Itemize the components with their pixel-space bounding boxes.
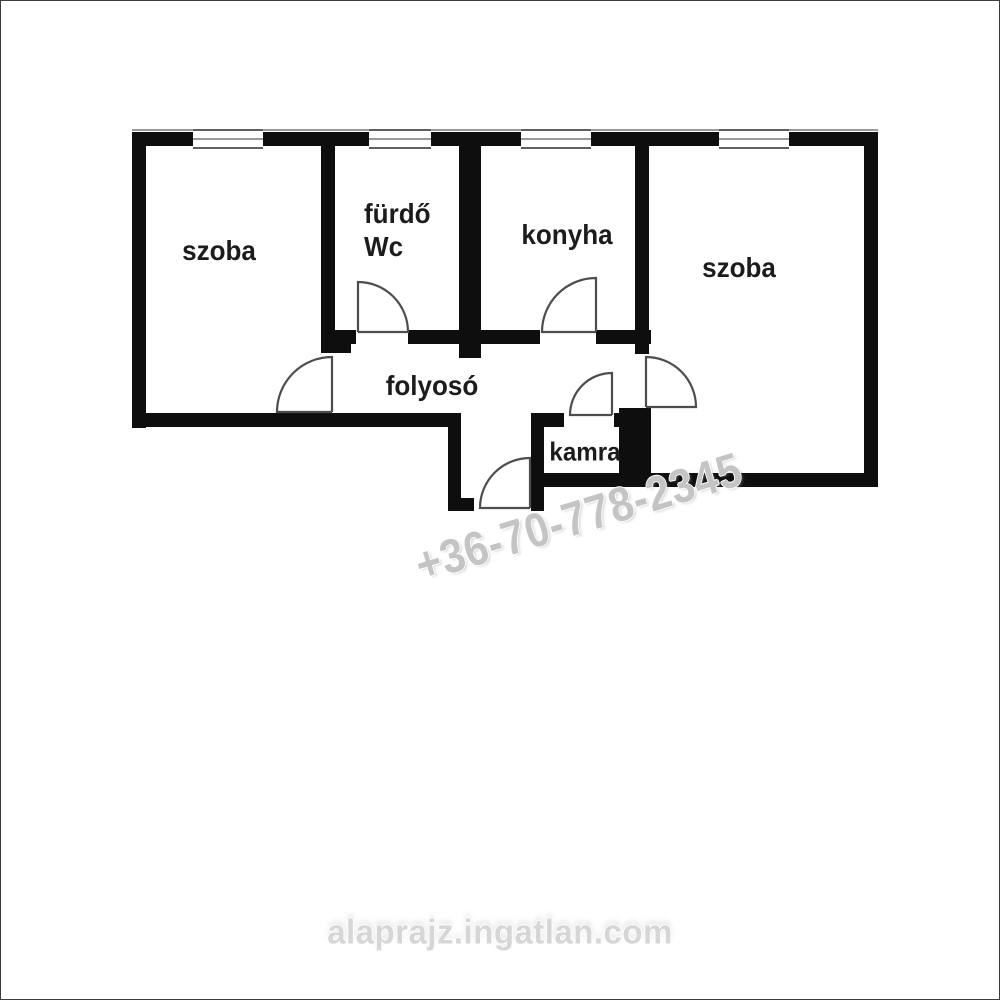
room-label-bathroom-line1: fürdő [364, 198, 431, 229]
room-label-room-right: szoba [702, 252, 776, 284]
door-arc-room-right [646, 357, 696, 407]
door-arc-bathroom [358, 282, 408, 332]
door-arc-room-left [277, 357, 332, 412]
door-symbols [1, 1, 1000, 1000]
room-label-pantry: kamra [549, 437, 620, 468]
room-label-hallway: folyosó [386, 370, 479, 402]
watermark-website: alaprajz.ingatlan.com [327, 914, 673, 953]
door-arc-entry [480, 458, 530, 508]
door-arc-kitchen [542, 278, 596, 332]
door-arc-pantry [570, 373, 612, 415]
room-label-bathroom-wc: fürdő Wc [364, 197, 431, 263]
room-label-bathroom-line2: Wc [364, 231, 403, 262]
room-label-room-left: szoba [182, 235, 256, 267]
room-label-kitchen: konyha [521, 219, 612, 251]
floorplan-image: szoba fürdő Wc konyha szoba folyosó kamr… [0, 0, 1000, 1000]
